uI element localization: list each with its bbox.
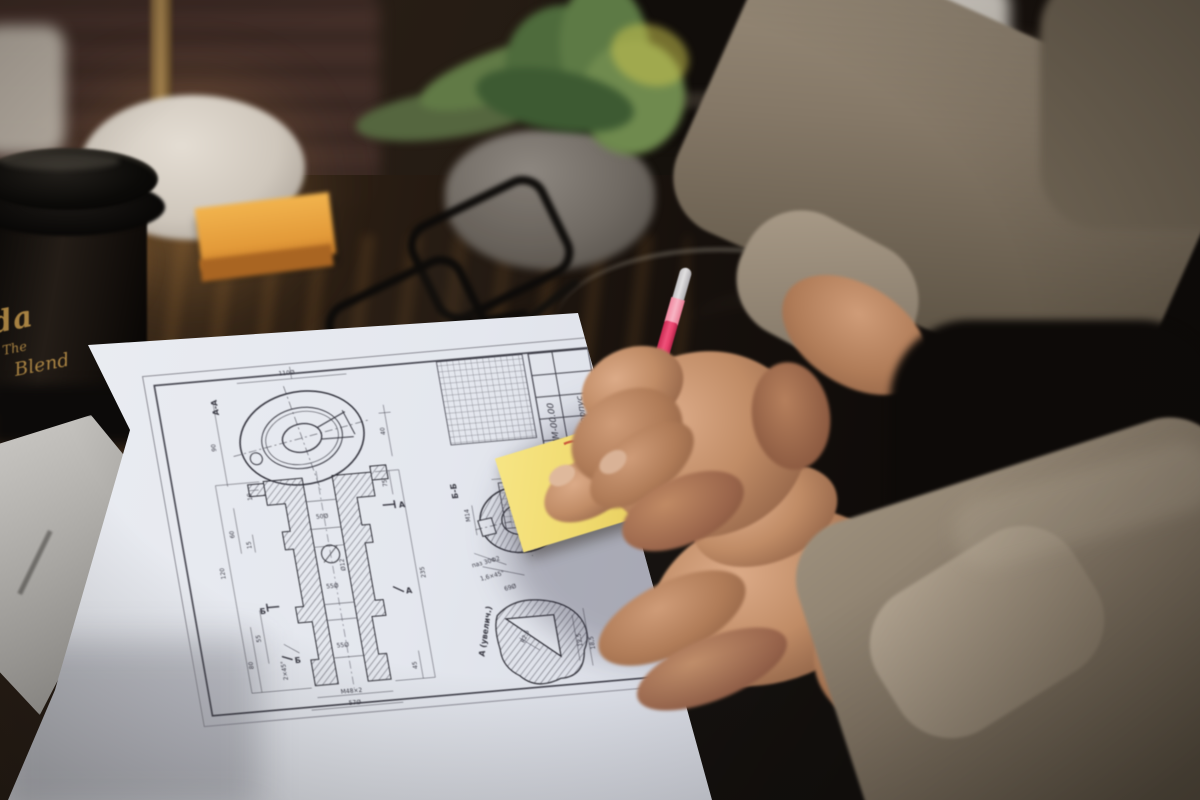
photo-scene: da The Blend <box>0 0 1200 800</box>
dim-text: 55 <box>255 634 263 642</box>
white-mug-corner <box>0 25 65 155</box>
dim-text: 1,6×45° <box>479 570 505 583</box>
dim-text: 57Ø <box>348 699 362 707</box>
dim-text: 110Ø <box>278 369 296 377</box>
main-section-view <box>246 465 424 695</box>
section-bb-label: Б-Б <box>449 483 461 499</box>
dim-text: 80 <box>247 661 255 669</box>
dim-text: 235 <box>419 566 428 578</box>
dim-text: М48×2 <box>340 687 363 696</box>
marker-a2-text: А <box>405 586 414 595</box>
section-aa-label: А-А <box>209 399 221 416</box>
detail-label: А (увелич.) <box>477 605 493 657</box>
dim-text: 15 <box>245 541 253 549</box>
dim-text: 90 <box>210 444 218 452</box>
dim-text: 55Ø <box>326 582 340 590</box>
dim-text: 60 <box>228 530 236 538</box>
dim-text: 40 <box>379 427 387 435</box>
dim-text: 75 <box>381 479 389 487</box>
person-shoulder <box>1040 0 1200 230</box>
dim-text: Ø12 <box>339 558 348 571</box>
succulent-leaves <box>355 0 685 200</box>
dim-text: 120 <box>219 567 228 579</box>
dim-text: М14 <box>463 509 472 522</box>
section-markers <box>251 500 421 661</box>
marker-a-text: А <box>398 500 407 509</box>
marker-b2-text: Б <box>294 656 302 665</box>
dim-text: 50Ø <box>315 513 329 521</box>
marker-b-text: Б <box>259 607 267 616</box>
dim-text: 10 <box>246 493 254 501</box>
dim-text: 55Ø <box>336 642 350 650</box>
dim-text: 45 <box>411 661 419 669</box>
coffee-cup-lid-highlight <box>0 152 120 170</box>
dim-text: 2×45° <box>280 661 290 681</box>
